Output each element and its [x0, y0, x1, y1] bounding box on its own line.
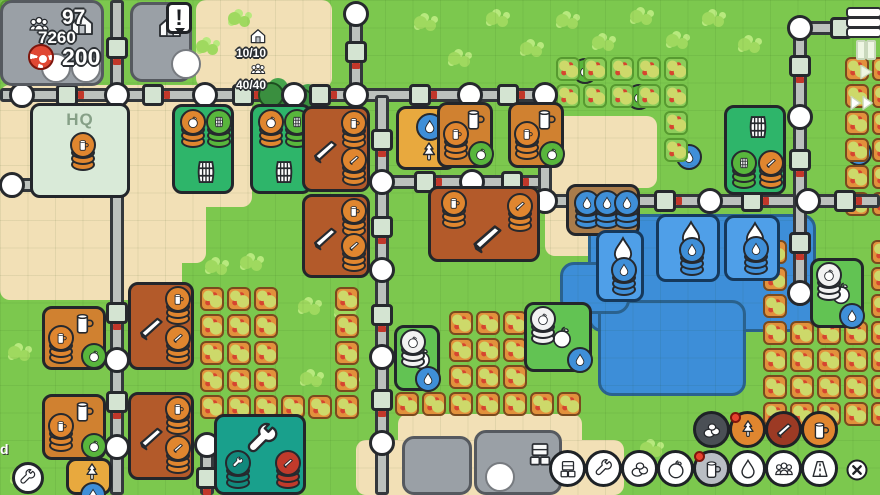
orchard-tile[interactable]: [817, 375, 841, 399]
apple-stack: [180, 109, 206, 151]
building-well[interactable]: [596, 230, 644, 302]
road-tick: [519, 91, 525, 99]
mug-icon: [443, 121, 469, 147]
alert-bubble[interactable]: !: [166, 2, 192, 34]
workers-value: 40/40: [236, 78, 266, 92]
build-button-crates[interactable]: [549, 450, 586, 487]
orchard-tile[interactable]: [556, 57, 580, 81]
building-lumber[interactable]: [128, 282, 194, 370]
building-lumber[interactable]: [302, 194, 370, 278]
clover-decor: [228, 12, 241, 25]
mug-icon: [441, 190, 467, 216]
mug-stack: [441, 190, 467, 232]
clover-decor: [414, 16, 427, 29]
mug-icon: [70, 132, 96, 158]
road-node-square[interactable]: [142, 84, 164, 106]
road-tick: [78, 91, 84, 99]
building-cider[interactable]: [42, 306, 106, 370]
road-tick: [763, 197, 769, 205]
road-tick: [436, 178, 442, 186]
drop-badge: [839, 303, 865, 329]
orchard-tile[interactable]: [817, 348, 841, 372]
road-node-circle[interactable]: [787, 15, 813, 41]
road-tick: [331, 91, 337, 99]
plank-icon: [134, 421, 168, 455]
road-node-circle[interactable]: [697, 188, 723, 214]
apple-icon: [816, 262, 842, 288]
road-tick: [113, 413, 121, 419]
clover-decor: [592, 36, 605, 49]
orchard-tile[interactable]: [227, 287, 251, 311]
orchard-tile[interactable]: [871, 402, 880, 426]
apple-badge: [81, 343, 107, 369]
road-tick: [431, 91, 437, 99]
mug-icon: [48, 325, 74, 351]
wrench-icon: [225, 450, 251, 476]
road-node-circle[interactable]: [343, 1, 369, 27]
mug-icon: [514, 121, 540, 147]
orchard-tile[interactable]: [449, 338, 473, 362]
mug-stack: [48, 325, 74, 367]
road-node-square[interactable]: [654, 190, 676, 212]
coin-ring-icon: [28, 44, 54, 70]
hq-label: HQ: [33, 110, 127, 130]
fast-forward-button[interactable]: [848, 92, 880, 114]
clover-decor: [738, 38, 751, 51]
road-node-circle[interactable]: [369, 430, 395, 456]
orchard-tile[interactable]: [610, 57, 634, 81]
building-orchardhut[interactable]: [394, 325, 440, 391]
orchard-tile[interactable]: [449, 365, 473, 389]
watermark-fragment: d: [0, 441, 9, 457]
drop-icon: [743, 236, 769, 262]
crates-icon: [557, 458, 579, 480]
barrel-icon: [731, 150, 757, 176]
orchard-tile[interactable]: [845, 165, 869, 189]
clover-decor: [486, 12, 499, 25]
barrel-icon: [191, 157, 221, 187]
people-icon: [773, 458, 795, 480]
road-tick: [523, 178, 529, 186]
road-node-square[interactable]: [789, 149, 811, 171]
orchard-tile[interactable]: [583, 84, 607, 108]
house-icon: [246, 26, 270, 46]
housing-value: 10/10: [236, 46, 266, 60]
road-tick: [676, 197, 682, 205]
barrel-icon: [269, 157, 299, 187]
orchard-tile[interactable]: [664, 138, 688, 162]
orchard-tile[interactable]: [335, 341, 359, 365]
mug-icon: [48, 413, 74, 439]
orchard-tile[interactable]: [200, 341, 224, 365]
plank-icon: [308, 221, 342, 255]
hidden-slot-circle: [485, 462, 515, 492]
orchard-tile[interactable]: [871, 240, 880, 264]
apple-badge: [81, 433, 107, 459]
road-node-circle[interactable]: [369, 169, 395, 195]
road-icon: [809, 458, 831, 480]
close-icon: [845, 458, 869, 482]
resource-button-plank[interactable]: [765, 411, 802, 448]
orchard-tile[interactable]: [476, 311, 500, 335]
build-button-road[interactable]: [801, 450, 838, 487]
road-tick: [796, 254, 804, 260]
plank-icon: [466, 217, 508, 259]
road-node-circle[interactable]: [369, 257, 395, 283]
mug-icon: [341, 198, 367, 224]
plank-icon: [341, 147, 367, 173]
apple-badge: [539, 141, 565, 167]
orchard-tile[interactable]: [503, 365, 527, 389]
orchard-tile[interactable]: [664, 84, 688, 108]
orchard-tile[interactable]: [763, 348, 787, 372]
road-tick: [378, 326, 386, 332]
clover-decor: [300, 372, 313, 385]
clover-decor: [240, 256, 253, 269]
mug-icon: [165, 286, 191, 312]
plank-icon: [341, 233, 367, 259]
barrel-icon: [206, 109, 232, 135]
mug-icon: [809, 419, 831, 441]
tree-icon: [737, 419, 759, 441]
population-value: 97: [62, 6, 85, 30]
orchard-tile[interactable]: [476, 338, 500, 362]
orchard-tile[interactable]: [871, 294, 880, 318]
road-node-circle[interactable]: [104, 347, 130, 373]
mug-icon: [165, 396, 191, 422]
orchard-tile[interactable]: [790, 321, 814, 345]
orchard-tile[interactable]: [844, 402, 868, 426]
apple-badge: [468, 141, 494, 167]
resource-button-mug[interactable]: [801, 411, 838, 448]
road-node-square[interactable]: [345, 41, 367, 63]
orchard-tile[interactable]: [637, 57, 661, 81]
road-tick: [378, 151, 386, 157]
notification-dot: [730, 412, 741, 423]
orchard-tile[interactable]: [845, 111, 869, 135]
orchard-tile[interactable]: [530, 392, 554, 416]
orchard-tile[interactable]: [871, 267, 880, 291]
mug-stack: [341, 110, 367, 152]
orchard-tile[interactable]: [200, 368, 224, 392]
orchard-tile[interactable]: [395, 392, 419, 416]
barrel-stack: [731, 150, 757, 192]
barrel-icon: [743, 112, 773, 142]
wrench-icon: [593, 458, 615, 480]
clover-decor: [702, 12, 715, 25]
apple-icon: [258, 109, 284, 135]
road-node-circle[interactable]: [369, 344, 395, 370]
game-map: HQ! 97 7260 200 10/10 40/40 d: [0, 0, 880, 495]
orchard-tile[interactable]: [449, 392, 473, 416]
orchard-tile[interactable]: [335, 368, 359, 392]
road-tick: [164, 91, 170, 99]
building-orchardhut[interactable]: [524, 302, 592, 372]
road-tick: [352, 63, 360, 69]
orchard-tile[interactable]: [763, 375, 787, 399]
road-tick: [203, 489, 211, 495]
building-cider[interactable]: [437, 102, 493, 168]
road-tick: [113, 59, 121, 65]
mug-icon: [701, 458, 723, 480]
road-segment[interactable]: [110, 0, 124, 495]
road-tick: [796, 171, 804, 177]
road-node-circle[interactable]: [343, 82, 369, 108]
orchard-tile[interactable]: [845, 138, 869, 162]
road-node-circle[interactable]: [104, 434, 130, 460]
orchard-tile[interactable]: [335, 395, 359, 419]
road-node-square[interactable]: [371, 389, 393, 411]
orchard-tile[interactable]: [610, 84, 634, 108]
road-node-circle[interactable]: [0, 172, 25, 198]
plank-stack: [165, 435, 191, 477]
plank-icon: [758, 150, 784, 176]
road-node-square[interactable]: [371, 129, 393, 151]
orchard-tile[interactable]: [790, 375, 814, 399]
orchard-tile[interactable]: [872, 138, 880, 162]
building-toolsmith[interactable]: [214, 414, 306, 495]
plank-stack: [165, 325, 191, 367]
road-node-square[interactable]: [789, 232, 811, 254]
clover-decor: [520, 42, 533, 55]
road-node-square[interactable]: [789, 55, 811, 77]
orchard-tile[interactable]: [254, 341, 278, 365]
stones-icon: [701, 419, 723, 441]
orchard-tile[interactable]: [227, 314, 251, 338]
notification-dot: [694, 451, 705, 462]
clover-decor: [8, 346, 21, 359]
play-button[interactable]: [855, 62, 875, 82]
road-tick: [113, 324, 121, 330]
orchard-tile[interactable]: [790, 348, 814, 372]
orchard-tile[interactable]: [763, 294, 787, 318]
orchard-tile[interactable]: [476, 392, 500, 416]
road-node-square[interactable]: [106, 391, 128, 413]
orchard-tile[interactable]: [872, 165, 880, 189]
drop-stack: [614, 190, 640, 232]
apple-stack: [816, 262, 842, 304]
pause-icon: [856, 40, 866, 60]
plank-stack: [507, 193, 533, 235]
orchard-tile[interactable]: [763, 321, 787, 345]
orchard-tile[interactable]: [227, 341, 251, 365]
orchard-tile[interactable]: [583, 57, 607, 81]
road-node-square[interactable]: [371, 304, 393, 326]
mug-stack: [48, 413, 74, 455]
build-button-stones[interactable]: [621, 450, 658, 487]
apple-icon: [530, 306, 556, 332]
building-forester2[interactable]: [66, 458, 112, 495]
road-tick: [796, 77, 804, 83]
pause-button[interactable]: [856, 40, 876, 58]
drop-icon: [614, 190, 640, 216]
fog-tile[interactable]: [402, 436, 472, 495]
plank-stack: [341, 233, 367, 275]
build-button-wrench[interactable]: [585, 450, 622, 487]
orchard-tile[interactable]: [664, 111, 688, 135]
orchard-tile[interactable]: [335, 287, 359, 311]
clover-decor: [196, 40, 209, 53]
plank-icon: [134, 311, 168, 345]
plank-stack: [341, 147, 367, 189]
building-well[interactable]: [724, 215, 780, 281]
build-button-drop[interactable]: [729, 450, 766, 487]
orchard-tile[interactable]: [871, 321, 880, 345]
drop-stack: [611, 257, 637, 299]
road-tick: [378, 238, 386, 244]
apple-stack: [400, 329, 426, 371]
building-lumber[interactable]: [302, 106, 370, 192]
orchard-tile[interactable]: [227, 368, 251, 392]
build-button-apple[interactable]: [657, 450, 694, 487]
clover-decor: [205, 260, 218, 273]
road-tick: [378, 411, 386, 417]
road-node-square[interactable]: [409, 84, 431, 106]
orchard-tile[interactable]: [449, 311, 473, 335]
orchard-tile[interactable]: [557, 392, 581, 416]
plank-icon: [275, 450, 301, 476]
wrench-stack: [225, 450, 251, 492]
plank-icon: [165, 435, 191, 461]
plank-icon: [308, 134, 342, 168]
plank-stack: [758, 150, 784, 192]
mug-icon: [341, 110, 367, 136]
orchard-tile[interactable]: [335, 314, 359, 338]
close-toolbar-button[interactable]: [845, 458, 869, 482]
plank-stack: [275, 450, 301, 492]
orchard-tile[interactable]: [254, 314, 278, 338]
building-well[interactable]: [656, 214, 720, 282]
tree-icon: [81, 462, 103, 484]
clover-decor: [556, 14, 569, 27]
building-orchardhut[interactable]: [810, 258, 864, 328]
mug-stack: [70, 132, 96, 174]
mug-stack: [165, 286, 191, 328]
resource-button-stones[interactable]: [693, 411, 730, 448]
coins-value: 200: [62, 44, 100, 71]
drop-icon: [737, 458, 759, 480]
stones-icon: [629, 458, 651, 480]
road-tick: [856, 197, 862, 205]
building-collector[interactable]: [566, 184, 640, 236]
play-icon: [855, 62, 875, 82]
orchard-tile[interactable]: [503, 392, 527, 416]
apple-icon: [400, 329, 426, 355]
upgrade-wrench-bubble[interactable]: [12, 462, 44, 494]
fast-forward-icon: [848, 92, 880, 114]
road-node-circle[interactable]: [795, 188, 821, 214]
building-lumber[interactable]: [128, 392, 194, 480]
apple-stack: [258, 109, 284, 151]
orchard-tile[interactable]: [200, 314, 224, 338]
road-node-square[interactable]: [834, 190, 856, 212]
people-small-icon: [246, 60, 270, 78]
build-button-mug[interactable]: [693, 450, 730, 487]
build-button-people[interactable]: [765, 450, 802, 487]
resource-button-tree[interactable]: [729, 411, 766, 448]
drop-stack: [743, 236, 769, 278]
apple-stack: [530, 306, 556, 348]
clover-decor: [298, 300, 311, 313]
plank-icon: [507, 193, 533, 219]
orchard-tile[interactable]: [871, 348, 880, 372]
orchard-tile[interactable]: [844, 375, 868, 399]
apple-icon: [665, 458, 687, 480]
menu-button[interactable]: [846, 7, 880, 39]
orchard-tile[interactable]: [422, 392, 446, 416]
clover-decor: [448, 52, 461, 65]
drop-icon: [679, 237, 705, 263]
barrel-stack: [206, 109, 232, 151]
road-node-square[interactable]: [309, 84, 331, 106]
orchard-tile[interactable]: [664, 57, 688, 81]
drop-icon: [611, 257, 637, 283]
orchard-tile[interactable]: [200, 287, 224, 311]
apple-icon: [180, 109, 206, 135]
orchard-tile[interactable]: [308, 395, 332, 419]
mug-stack: [165, 396, 191, 438]
alert-exclamation: !: [175, 5, 182, 31]
building-barrelhouse[interactable]: [172, 104, 234, 194]
building-barrelmaker[interactable]: [724, 105, 786, 195]
lake-water: [598, 300, 746, 396]
clover-decor: [666, 34, 679, 47]
plank-icon: [165, 325, 191, 351]
road-node-circle[interactable]: [787, 104, 813, 130]
orchard-tile[interactable]: [844, 348, 868, 372]
building-hq[interactable]: HQ: [30, 103, 130, 198]
building-cider[interactable]: [508, 102, 564, 168]
mug-stack: [443, 121, 469, 163]
clover-decor: [630, 10, 643, 23]
orchard-tile[interactable]: [872, 111, 880, 135]
hidden-slot-circle: [171, 49, 201, 79]
orchard-tile[interactable]: [637, 84, 661, 108]
building-lumberbig[interactable]: [428, 186, 540, 262]
road-node-square[interactable]: [106, 37, 128, 59]
orchard-tile[interactable]: [254, 287, 278, 311]
drop-badge: [567, 347, 593, 373]
road-node-square[interactable]: [106, 302, 128, 324]
plank-icon: [773, 419, 795, 441]
orchard-tile[interactable]: [476, 365, 500, 389]
road-node-square[interactable]: [371, 216, 393, 238]
building-cider[interactable]: [42, 394, 106, 460]
orchard-tile[interactable]: [254, 368, 278, 392]
drop-stack: [679, 237, 705, 279]
mug-stack: [514, 121, 540, 163]
orchard-tile[interactable]: [871, 375, 880, 399]
